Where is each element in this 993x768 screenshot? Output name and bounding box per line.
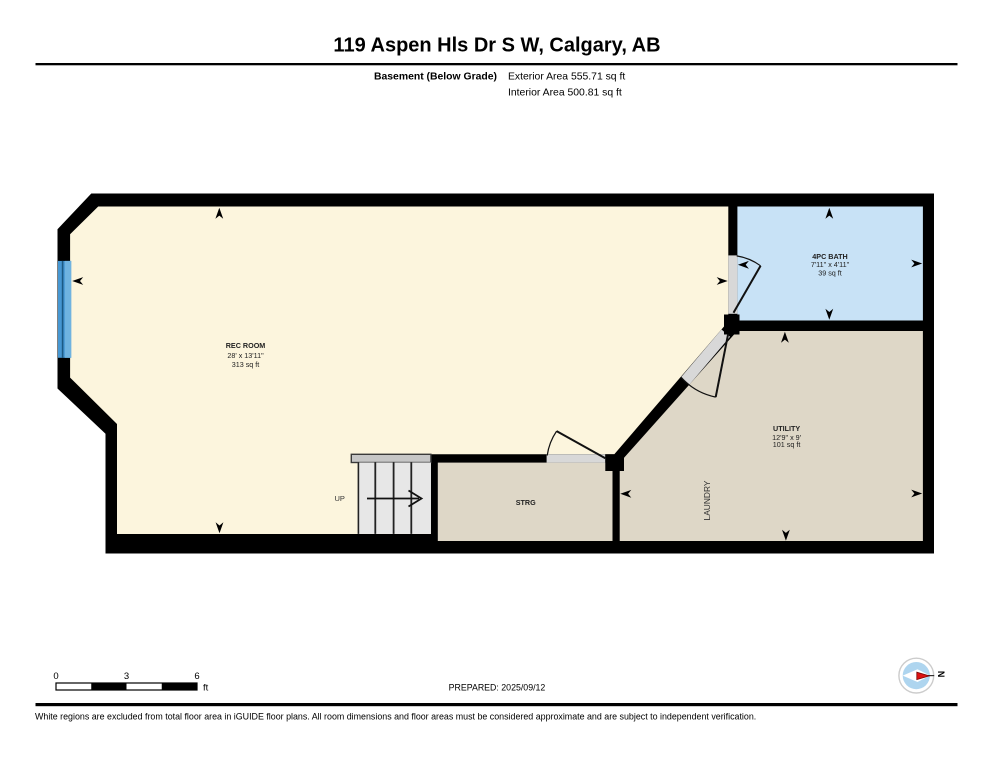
svg-text:Exterior Area 555.71 sq ft: Exterior Area 555.71 sq ft	[508, 72, 625, 83]
svg-text:STRG: STRG	[516, 498, 536, 507]
svg-text:LAUNDRY: LAUNDRY	[702, 480, 712, 520]
svg-text:ft: ft	[203, 683, 209, 694]
svg-text:UP: UP	[334, 494, 344, 503]
svg-text:N: N	[936, 671, 946, 678]
svg-text:PREPARED: 2025/09/12: PREPARED: 2025/09/12	[449, 683, 546, 693]
svg-text:39 sq ft: 39 sq ft	[818, 269, 842, 278]
svg-text:White regions are excluded fro: White regions are excluded from total fl…	[35, 712, 756, 722]
svg-text:101 sq ft: 101 sq ft	[773, 440, 801, 449]
svg-text:REC ROOM: REC ROOM	[226, 341, 266, 350]
svg-text:3: 3	[124, 671, 129, 682]
svg-text:119 Aspen Hls Dr S W, Calgary,: 119 Aspen Hls Dr S W, Calgary, AB	[333, 35, 660, 57]
svg-text:6: 6	[194, 671, 199, 682]
svg-text:28' x 13'11": 28' x 13'11"	[227, 351, 264, 360]
svg-text:Basement (Below Grade): Basement (Below Grade)	[374, 72, 497, 83]
svg-text:313 sq ft: 313 sq ft	[232, 360, 260, 369]
svg-text:Interior Area 500.81 sq ft: Interior Area 500.81 sq ft	[508, 88, 622, 99]
svg-text:0: 0	[53, 671, 58, 682]
